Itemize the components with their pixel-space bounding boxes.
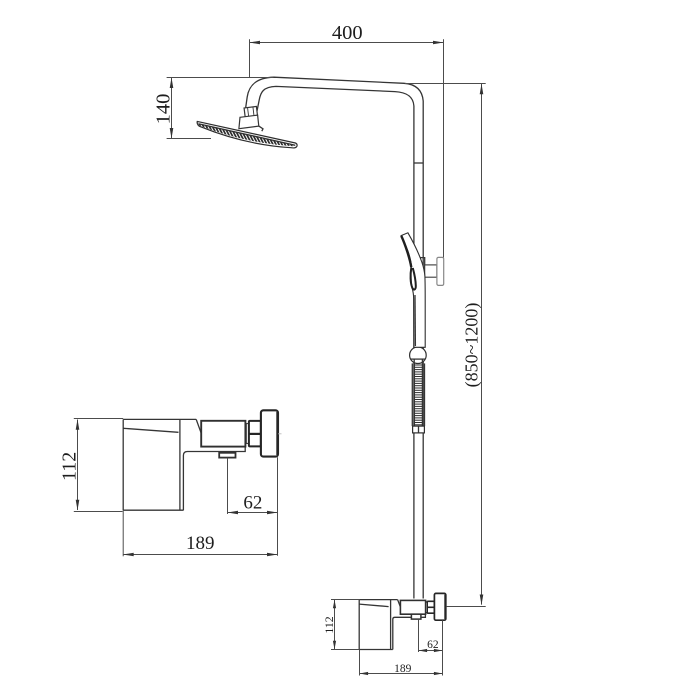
svg-text:189: 189: [394, 663, 412, 675]
svg-text:140: 140: [153, 94, 175, 125]
svg-text:(850~1200): (850~1200): [462, 303, 483, 388]
svg-text:112: 112: [322, 616, 336, 633]
svg-text:112: 112: [58, 452, 80, 481]
svg-text:62: 62: [243, 493, 262, 514]
svg-text:400: 400: [332, 22, 363, 44]
svg-text:189: 189: [186, 533, 215, 554]
svg-text:62: 62: [427, 639, 439, 651]
